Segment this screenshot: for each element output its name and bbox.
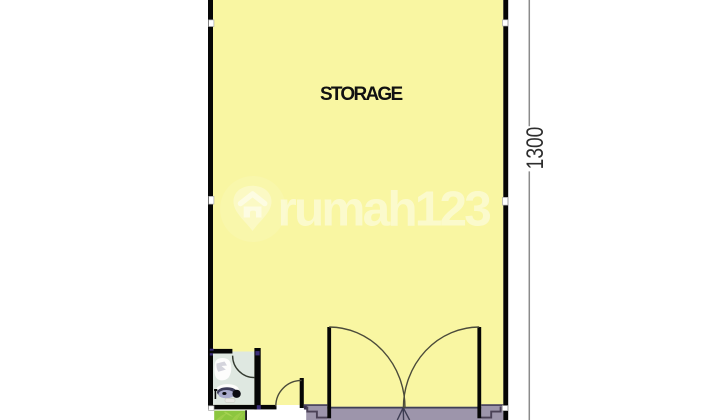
svg-text:1300: 1300 [521,127,549,170]
svg-text:STORAGE: STORAGE [320,84,402,105]
svg-text:rumah123: rumah123 [278,182,491,237]
